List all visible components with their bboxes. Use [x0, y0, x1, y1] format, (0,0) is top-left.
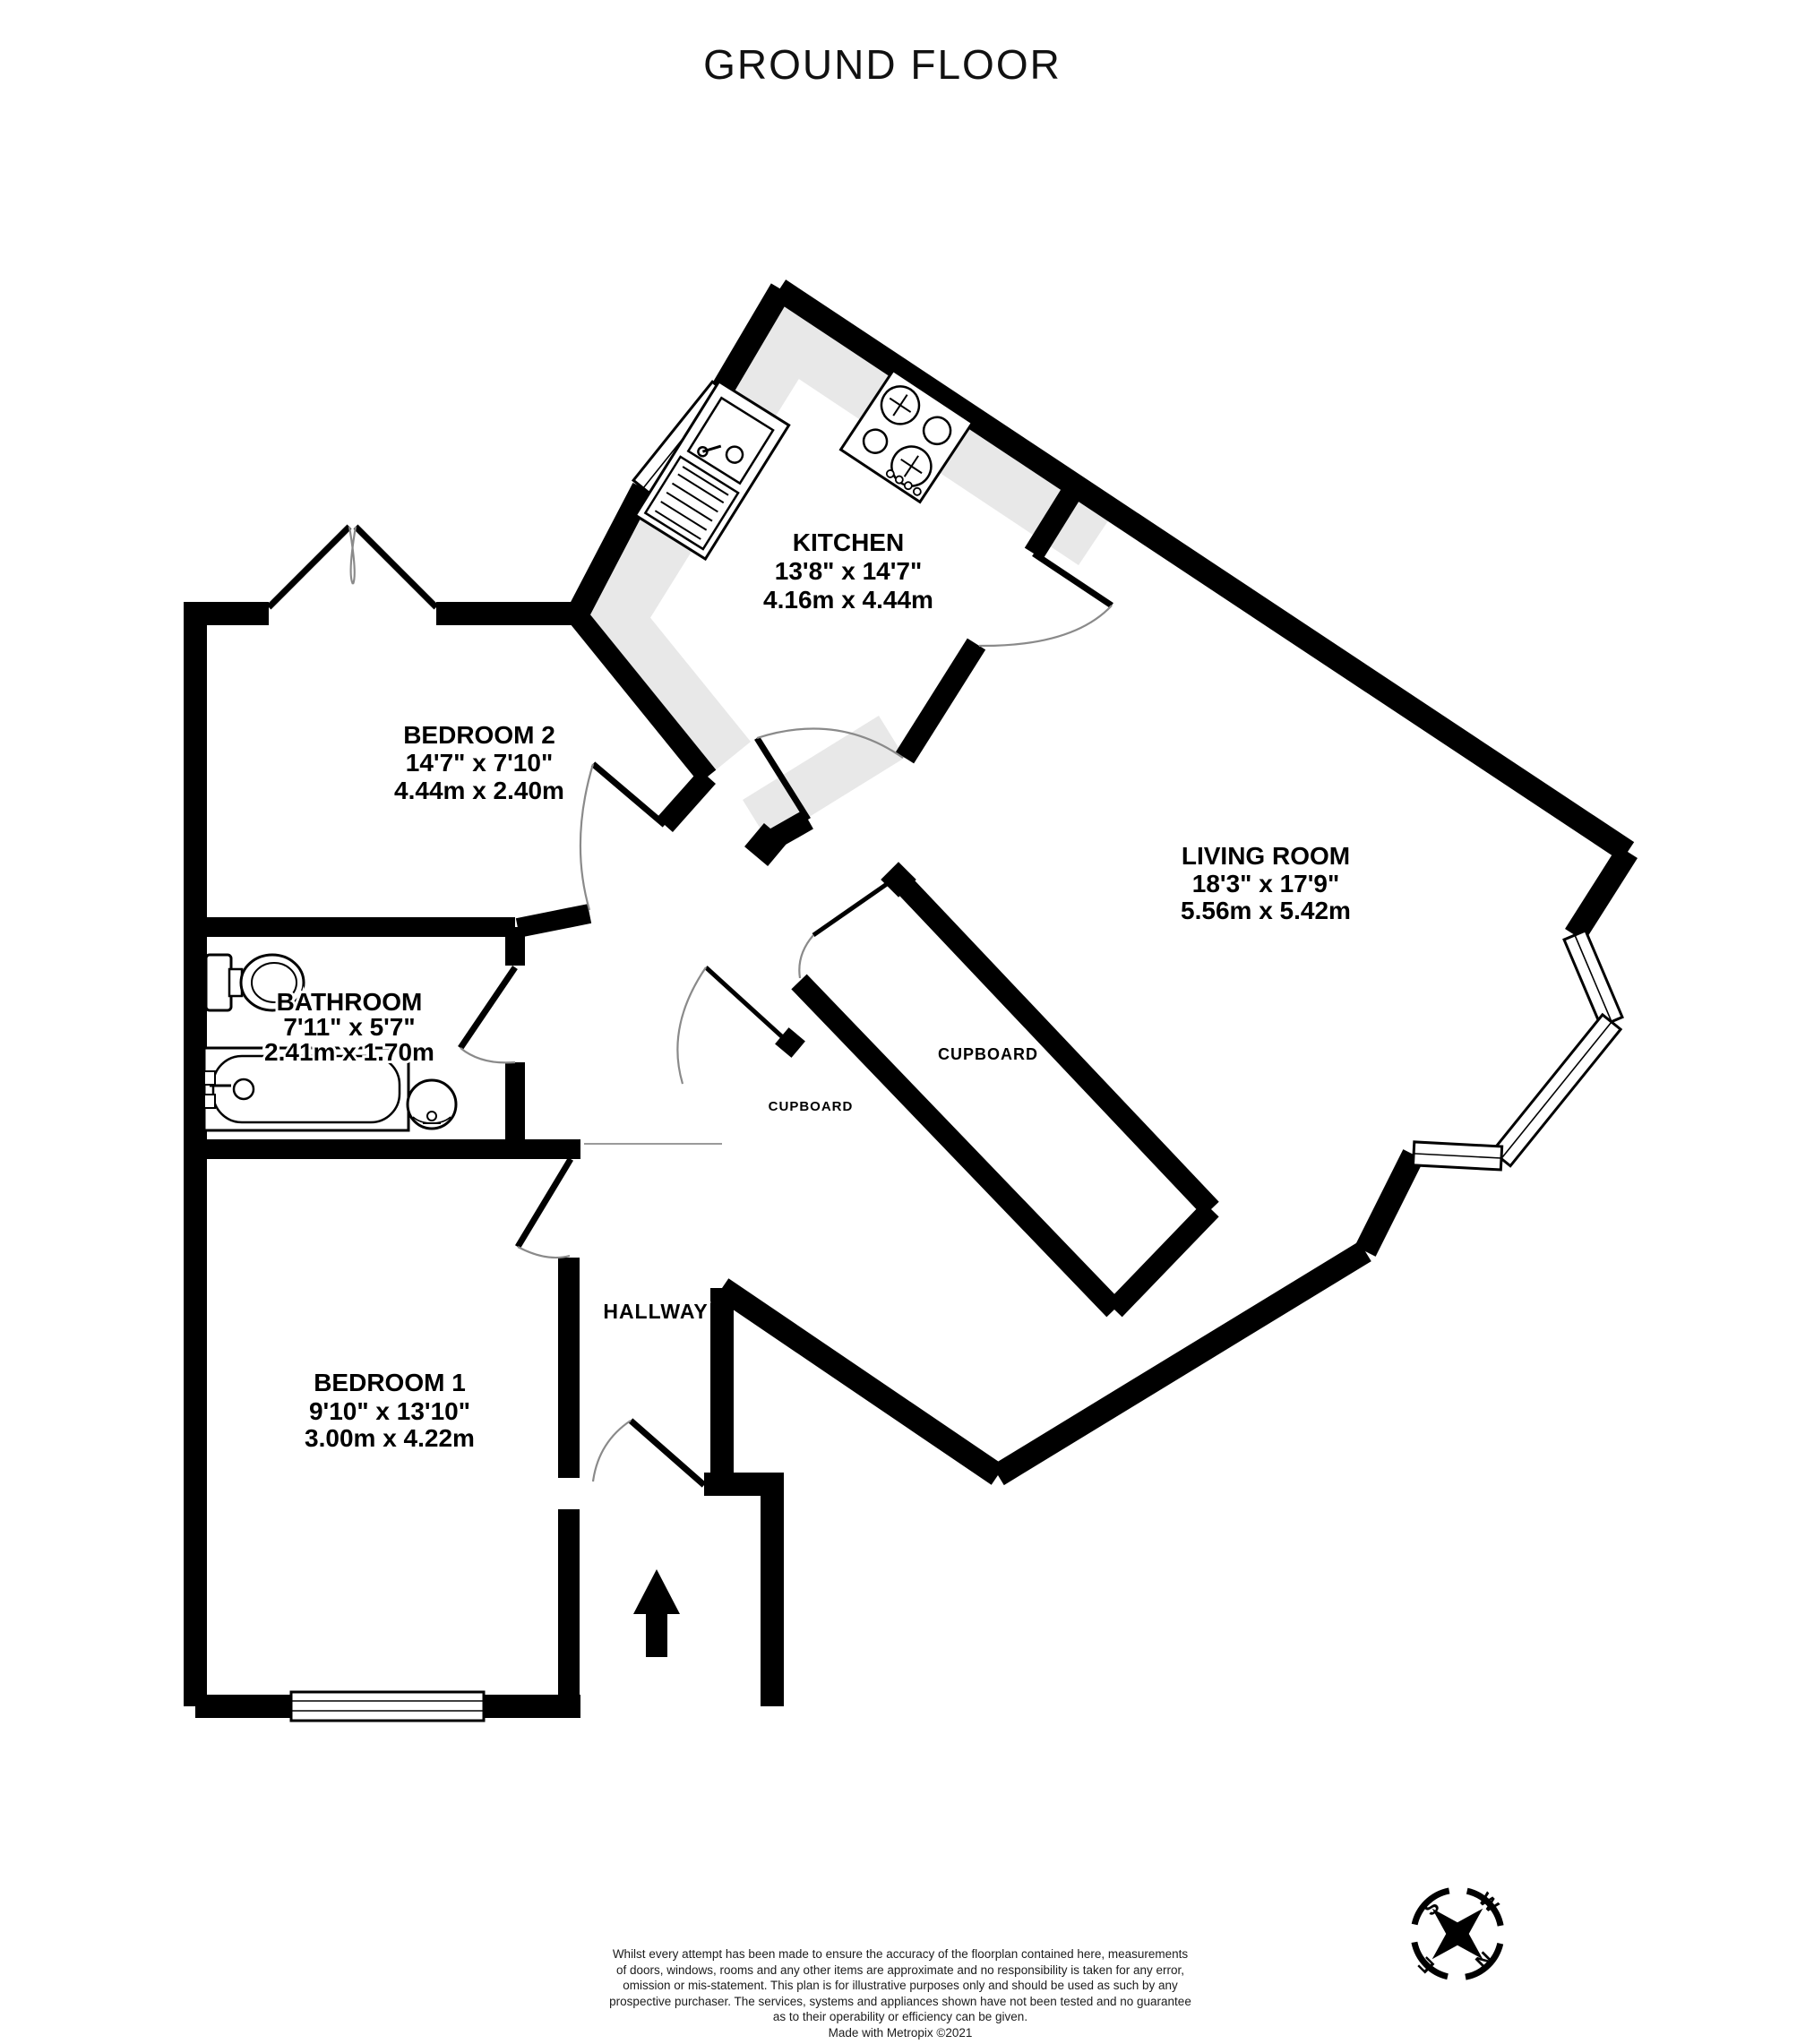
window-bay-1 [1564, 931, 1622, 1026]
wall-bay-bottom [1365, 1155, 1414, 1251]
page-title: GROUND FLOOR [703, 41, 1062, 88]
basin-icon [408, 1080, 456, 1129]
door-living [979, 554, 1112, 646]
wall-living-left-lower [905, 644, 976, 758]
door-cupboard-hall [677, 967, 787, 1084]
bedroom1-name: BEDROOM 1 [314, 1369, 466, 1396]
door-front [593, 1421, 704, 1485]
room-label-living: LIVING ROOM 18'3" x 17'9" 5.56m x 5.42m [1181, 842, 1351, 924]
bathroom-name: BATHROOM [277, 988, 423, 1016]
door-bedroom2 [580, 764, 665, 910]
wall-exterior-se [998, 1251, 1365, 1475]
bedroom2-name: BEDROOM 2 [403, 721, 555, 749]
door-cupboard-living [799, 878, 896, 978]
disclaimer-line1: Whilst every attempt has been made to en… [613, 1947, 1189, 1961]
window-bay-2 [1492, 1015, 1621, 1166]
wall-cupboard-sw [799, 982, 1114, 1310]
disclaimer-line3: omission or mis-statement. This plan is … [623, 1979, 1178, 1992]
hallway-label: HALLWAY [603, 1300, 708, 1323]
room-label-bedroom1: BEDROOM 1 9'10" x 13'10" 3.00m x 4.22m [305, 1369, 475, 1452]
room-label-kitchen: KITCHEN 13'8" x 14'7" 4.16m x 4.44m [763, 528, 933, 614]
entrance-arrow-icon [633, 1569, 680, 1657]
wall-bay-top [1575, 852, 1628, 935]
disclaimer-line4: prospective purchaser. The services, sys… [609, 1995, 1191, 2008]
wall-cupboard-se [1114, 1209, 1211, 1310]
french-doors-bedroom2 [269, 527, 436, 607]
disclaimer-line2: of doors, windows, rooms and any other i… [616, 1963, 1184, 1977]
kitchen-name: KITCHEN [793, 528, 904, 556]
kitchen-metric: 4.16m x 4.44m [763, 586, 933, 614]
bedroom1-metric: 3.00m x 4.22m [305, 1424, 475, 1452]
wall-cupboard-ne [893, 873, 1211, 1209]
bedroom2-imperial: 14'7" x 7'10" [406, 749, 553, 777]
kitchen-imperial: 13'8" x 14'7" [775, 557, 922, 585]
door-bathroom [460, 967, 515, 1062]
compass-icon: N E S W [1384, 1860, 1531, 2007]
wall-exterior-sw [722, 1288, 998, 1475]
window-bedroom1 [291, 1692, 484, 1721]
bedroom2-metric: 4.44m x 2.40m [394, 777, 564, 804]
made-with-credit: Made with Metropix ©2021 [829, 2026, 973, 2040]
room-label-bathroom: BATHROOM 7'11" x 5'7" 2.41m x 1.70m [264, 988, 434, 1066]
wall-hall-connector [518, 914, 589, 928]
floorplan-drawing: N E S W GROUND FLOOR KITCHEN 13'8" x 14'… [0, 0, 1814, 2044]
bathroom-metric: 2.41m x 1.70m [264, 1038, 434, 1066]
living-imperial: 18'3" x 17'9" [1192, 870, 1339, 897]
cupboard-living-label: CUPBOARD [938, 1045, 1038, 1063]
living-name: LIVING ROOM [1182, 842, 1350, 870]
disclaimer-line5: as to their operability or efficiency ca… [773, 2010, 1027, 2023]
bathroom-imperial: 7'11" x 5'7" [283, 1013, 415, 1041]
living-metric: 5.56m x 5.42m [1181, 897, 1351, 924]
cupboard-hall-label: CUPBOARD [769, 1099, 854, 1114]
disclaimer: Whilst every attempt has been made to en… [609, 1947, 1191, 2040]
floorplan-page: N E S W GROUND FLOOR KITCHEN 13'8" x 14'… [0, 0, 1814, 2044]
wall-bed2-door-stub [665, 777, 708, 825]
bedroom1-imperial: 9'10" x 13'10" [309, 1397, 470, 1425]
room-label-bedroom2: BEDROOM 2 14'7" x 7'10" 4.44m x 2.40m [394, 721, 564, 804]
door-bedroom1 [518, 1159, 571, 1258]
window-bay-3 [1413, 1142, 1501, 1170]
